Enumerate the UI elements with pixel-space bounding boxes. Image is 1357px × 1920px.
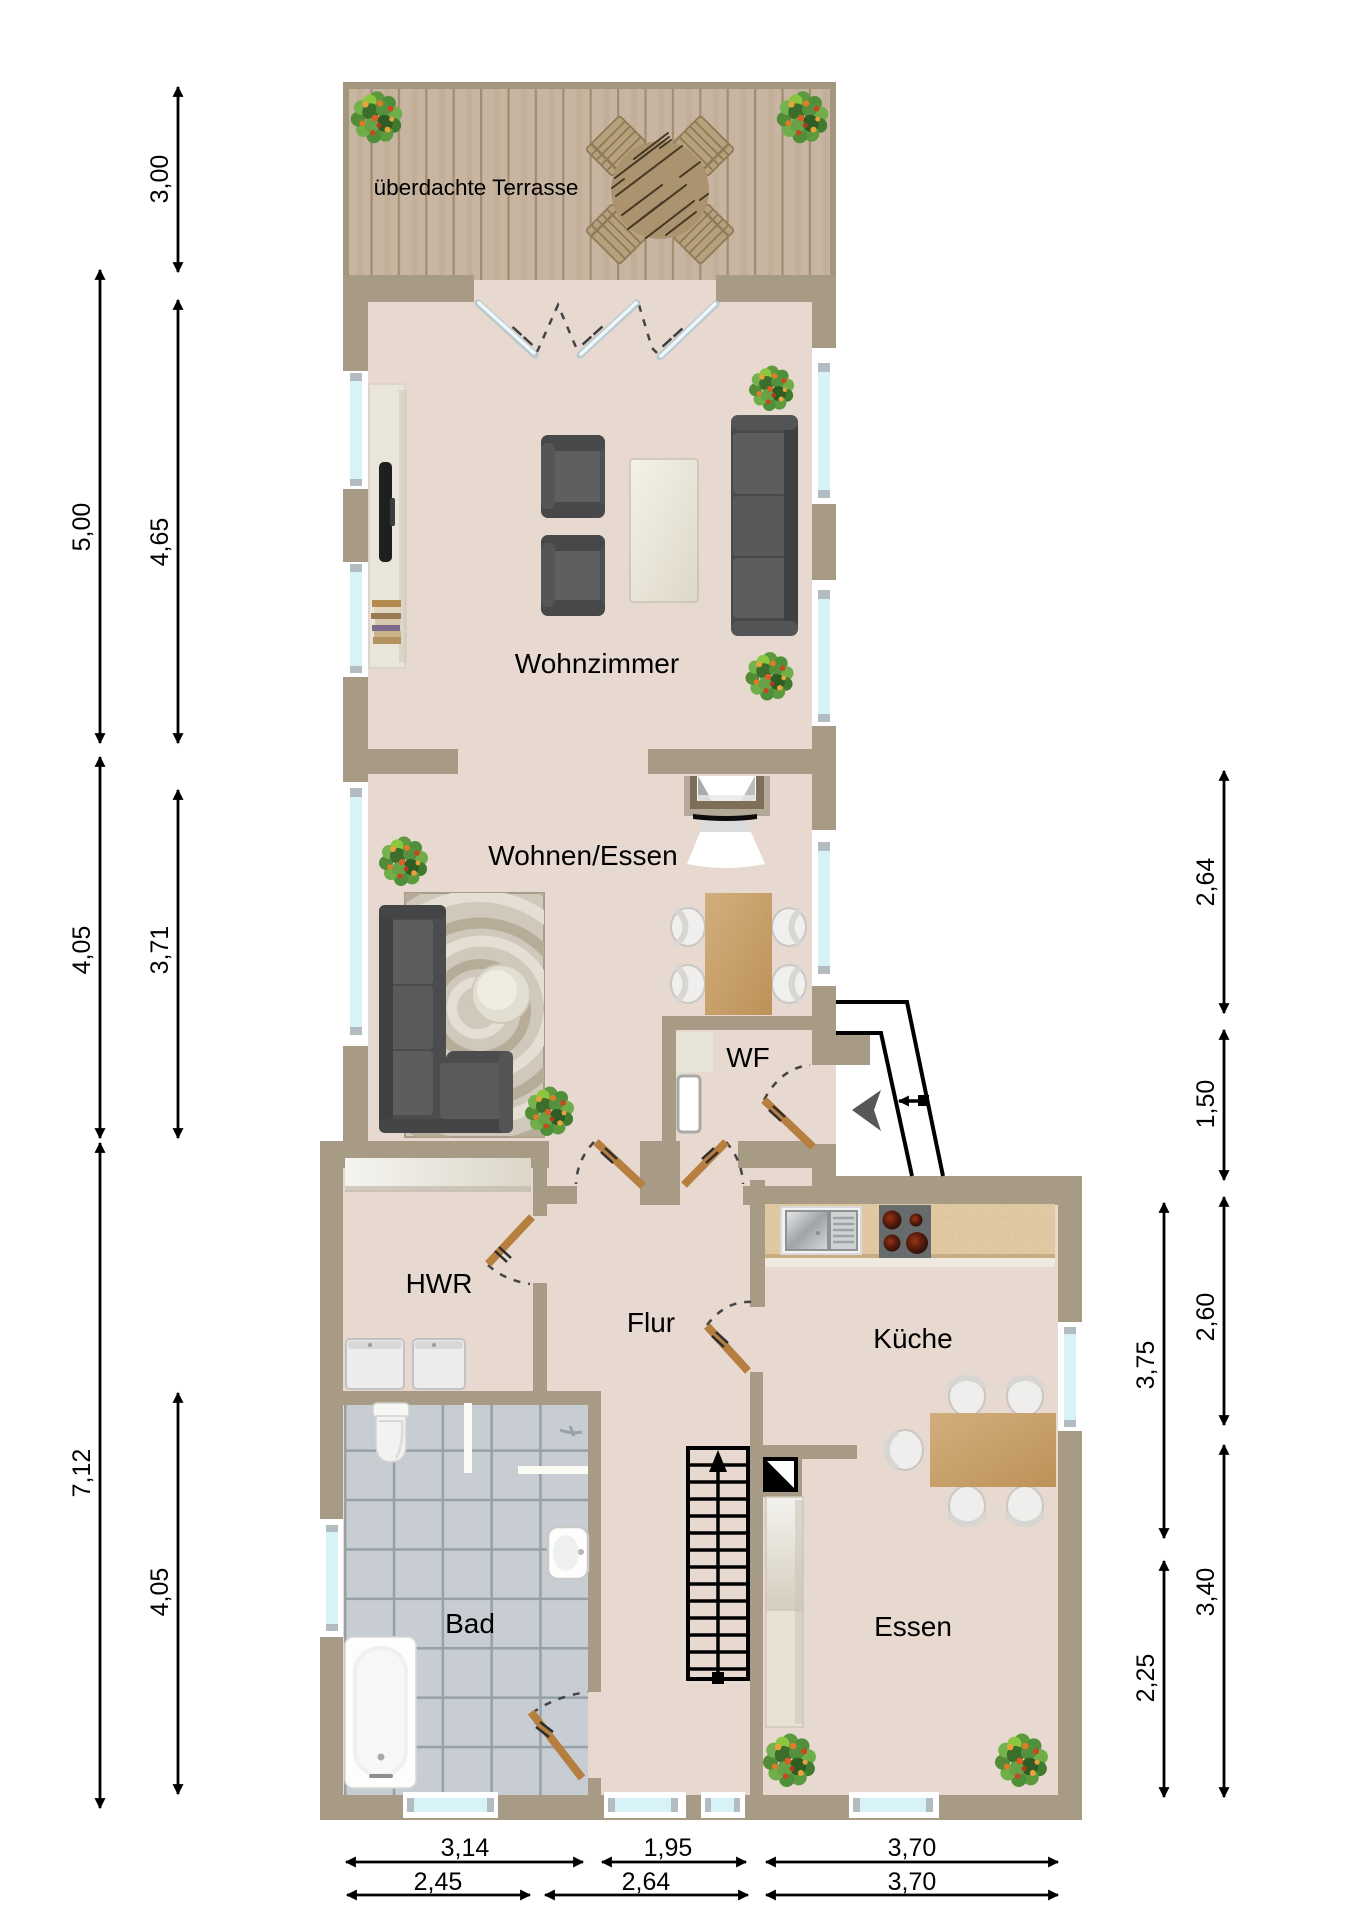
svg-text:Küche: Küche — [873, 1323, 952, 1354]
svg-text:3,14: 3,14 — [441, 1834, 490, 1862]
svg-text:Wohnzimmer: Wohnzimmer — [515, 648, 679, 679]
svg-text:3,70: 3,70 — [888, 1868, 937, 1896]
svg-text:2,60: 2,60 — [1192, 1293, 1220, 1342]
svg-text:3,00: 3,00 — [146, 155, 174, 204]
svg-text:WF: WF — [726, 1042, 770, 1073]
svg-text:2,64: 2,64 — [1192, 858, 1220, 907]
svg-text:1,95: 1,95 — [644, 1834, 693, 1862]
svg-text:Wohnen/Essen: Wohnen/Essen — [488, 840, 677, 871]
svg-text:3,40: 3,40 — [1192, 1568, 1220, 1617]
svg-text:3,70: 3,70 — [888, 1834, 937, 1862]
svg-text:HWR: HWR — [406, 1268, 473, 1299]
svg-text:Bad: Bad — [445, 1608, 495, 1639]
svg-text:Essen: Essen — [874, 1611, 952, 1642]
svg-text:Flur: Flur — [627, 1307, 675, 1338]
svg-text:2,64: 2,64 — [622, 1868, 671, 1896]
svg-text:3,75: 3,75 — [1132, 1341, 1160, 1390]
svg-text:4,05: 4,05 — [68, 926, 96, 975]
svg-text:5,00: 5,00 — [68, 503, 96, 552]
svg-text:2,25: 2,25 — [1132, 1654, 1160, 1703]
svg-text:überdachte Terrasse: überdachte Terrasse — [374, 175, 579, 200]
svg-text:4,65: 4,65 — [146, 518, 174, 567]
svg-text:2,45: 2,45 — [414, 1868, 463, 1896]
svg-text:7,12: 7,12 — [68, 1449, 96, 1498]
svg-text:1,50: 1,50 — [1192, 1080, 1220, 1129]
svg-text:3,71: 3,71 — [146, 926, 174, 975]
svg-text:4,05: 4,05 — [146, 1568, 174, 1617]
